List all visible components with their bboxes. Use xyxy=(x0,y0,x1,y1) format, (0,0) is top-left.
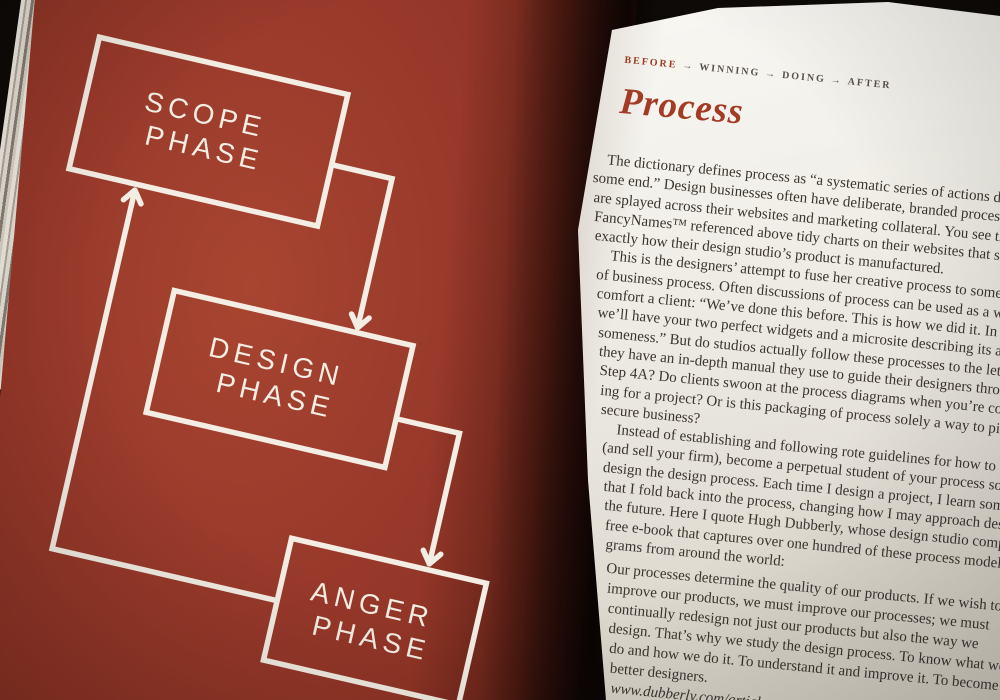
arrow-icon: → xyxy=(677,60,700,73)
breadcrumb-item-before: BEFORE xyxy=(624,55,678,71)
scope-phase-box xyxy=(69,37,348,226)
design-phase-label: DESIGN PHASE xyxy=(199,331,360,427)
page-text-column: BEFORE→WINNING→DOING→AFTER Process The d… xyxy=(588,26,1000,699)
breadcrumb-item-after: AFTER xyxy=(847,76,892,91)
breadcrumb-item-winning: WINNING xyxy=(699,62,761,79)
arrow-icon: → xyxy=(760,68,783,81)
book-photo: SCOPE PHASE DESIGN PHASE ANGER PHASE BEF… xyxy=(0,0,1000,700)
right-white-page: BEFORE→WINNING→DOING→AFTER Process The d… xyxy=(548,0,1000,700)
connector-design-to-anger xyxy=(366,419,459,564)
breadcrumb-item-doing: DOING xyxy=(782,70,827,85)
scope-phase-label: SCOPE PHASE xyxy=(134,86,281,179)
arrow-icon: → xyxy=(825,74,848,87)
anger-phase-label: ANGER PHASE xyxy=(301,576,449,669)
connector-scope-to-design xyxy=(297,165,392,328)
design-phase-box xyxy=(146,291,413,468)
